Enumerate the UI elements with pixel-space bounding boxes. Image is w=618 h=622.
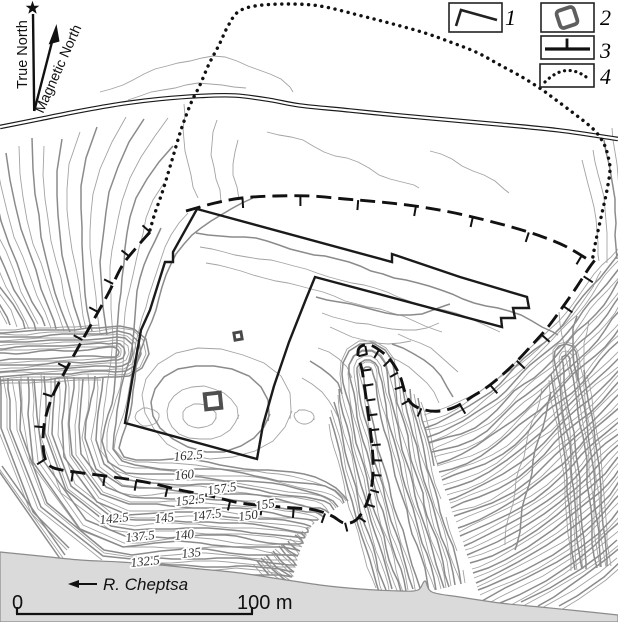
svg-text:R. Cheptsa: R. Cheptsa <box>103 575 188 594</box>
svg-text:160: 160 <box>174 466 195 483</box>
svg-text:142.5: 142.5 <box>99 509 130 527</box>
svg-text:4: 4 <box>600 64 611 89</box>
svg-text:162.5: 162.5 <box>173 446 204 464</box>
svg-text:3: 3 <box>599 38 611 63</box>
svg-text:135: 135 <box>181 544 202 561</box>
svg-text:True North: True North <box>15 20 31 89</box>
svg-text:132.5: 132.5 <box>130 552 161 570</box>
svg-text:140: 140 <box>174 526 195 543</box>
svg-text:1: 1 <box>505 5 516 30</box>
svg-text:2: 2 <box>600 5 611 30</box>
svg-text:145: 145 <box>154 509 175 526</box>
svg-text:155: 155 <box>254 495 276 513</box>
svg-text:100 m: 100 m <box>237 592 293 614</box>
svg-text:150: 150 <box>237 506 259 524</box>
svg-text:137.5: 137.5 <box>125 527 156 545</box>
svg-text:0: 0 <box>12 592 23 614</box>
